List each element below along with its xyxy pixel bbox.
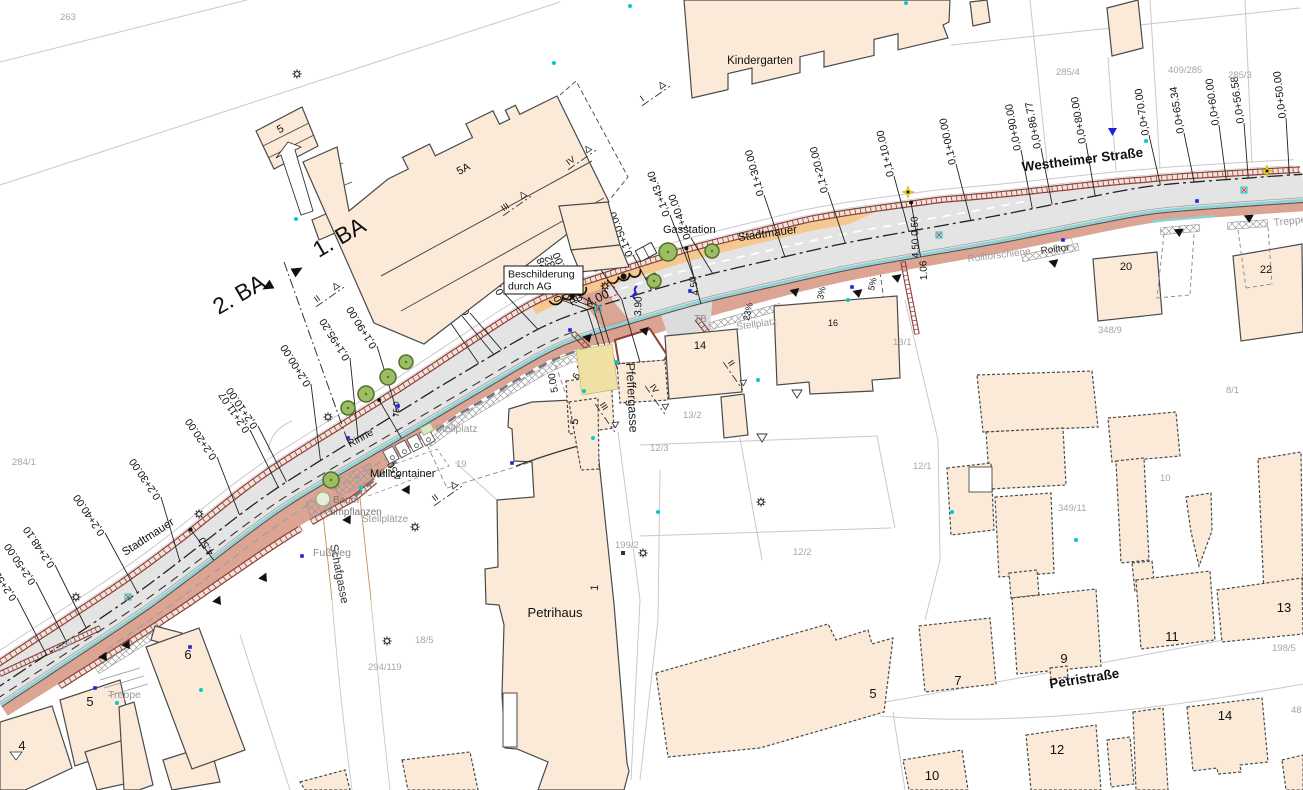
svg-text:10: 10	[925, 768, 939, 783]
svg-text:6: 6	[184, 647, 191, 662]
svg-text:12/2: 12/2	[793, 547, 812, 558]
svg-text:284/1: 284/1	[12, 457, 36, 468]
svg-text:285/4: 285/4	[1056, 67, 1080, 78]
svg-text:7: 7	[954, 673, 961, 688]
svg-text:22: 22	[1260, 264, 1272, 276]
svg-text:48: 48	[1291, 705, 1302, 716]
svg-text:8/1: 8/1	[1226, 385, 1239, 396]
svg-text:4: 4	[18, 738, 25, 753]
svg-text:Kindergarten: Kindergarten	[727, 55, 793, 67]
svg-text:263: 263	[60, 12, 76, 23]
svg-text:199/2: 199/2	[615, 540, 639, 551]
svg-text:Stellplatz: Stellplatz	[435, 423, 478, 435]
svg-text:18/5: 18/5	[415, 635, 434, 646]
svg-text:umpflanzen: umpflanzen	[330, 507, 382, 518]
svg-text:Fußweg: Fußweg	[313, 547, 351, 559]
svg-text:Petrihaus: Petrihaus	[528, 605, 583, 620]
svg-text:Beschilderung: Beschilderung	[508, 269, 575, 281]
svg-text:5: 5	[86, 694, 93, 709]
svg-text:12/3: 12/3	[650, 443, 669, 454]
svg-text:3.90: 3.90	[633, 296, 645, 316]
svg-text:198/5: 198/5	[1272, 643, 1296, 654]
svg-text:durch AG: durch AG	[508, 281, 552, 293]
svg-text:14: 14	[694, 340, 706, 352]
svg-text:1: 1	[589, 584, 601, 591]
svg-text:11: 11	[1165, 629, 1179, 644]
svg-text:Müllcontainer: Müllcontainer	[370, 468, 436, 480]
svg-text:348/9: 348/9	[1098, 325, 1122, 336]
svg-text:13/2: 13/2	[683, 410, 702, 421]
svg-text:14: 14	[1218, 708, 1232, 723]
svg-text:285/3: 285/3	[1228, 70, 1252, 81]
svg-text:10: 10	[1160, 473, 1171, 484]
svg-text:1.06: 1.06	[918, 260, 930, 280]
svg-text:Gasstation: Gasstation	[663, 224, 716, 236]
svg-text:5: 5	[869, 686, 876, 701]
svg-text:16: 16	[828, 318, 838, 328]
svg-text:20: 20	[1120, 261, 1132, 273]
svg-text:75 0: 75 0	[392, 401, 401, 417]
svg-text:4.50 0.50: 4.50 0.50	[910, 216, 922, 259]
svg-text:12/1: 12/1	[913, 461, 932, 472]
svg-text:294/119: 294/119	[368, 662, 402, 673]
svg-text:409/285: 409/285	[1168, 65, 1202, 76]
svg-text:9: 9	[1060, 651, 1067, 666]
svg-text:Treppe: Treppe	[108, 689, 141, 701]
svg-text:TB: TB	[694, 314, 707, 325]
svg-text:19: 19	[456, 459, 467, 470]
svg-text:13/1: 13/1	[893, 337, 912, 348]
svg-text:12: 12	[1050, 742, 1064, 757]
svg-text:13: 13	[1277, 600, 1291, 615]
svg-text:5: 5	[569, 418, 581, 425]
svg-text:349/11: 349/11	[1058, 503, 1086, 514]
svg-text:Baum: Baum	[333, 495, 359, 506]
